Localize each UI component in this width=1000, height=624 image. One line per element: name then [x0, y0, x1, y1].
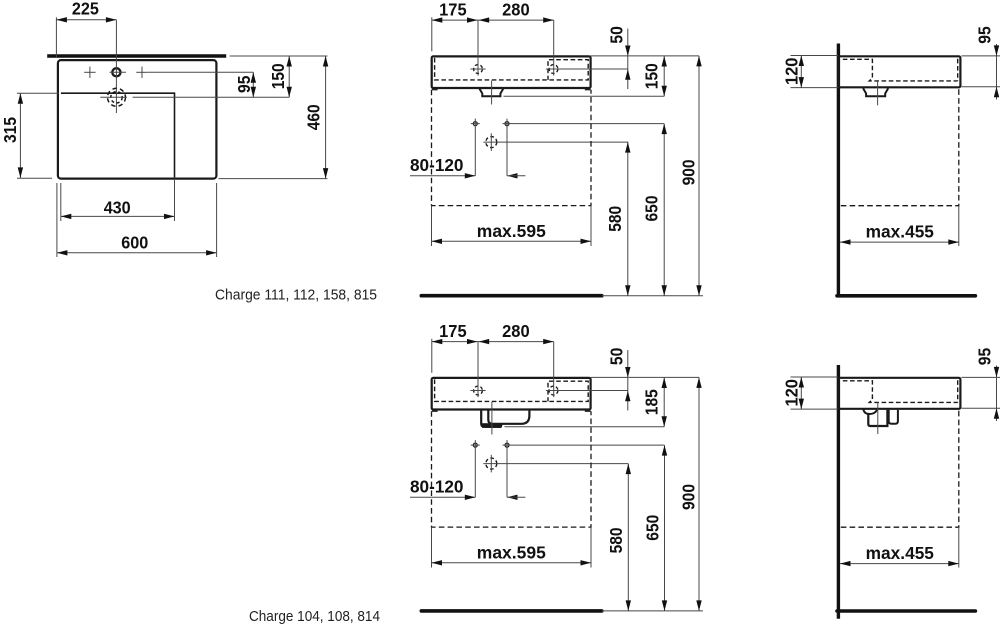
svg-text:175: 175: [439, 0, 467, 20]
svg-text:185: 185: [641, 389, 661, 415]
svg-text:120: 120: [781, 379, 801, 407]
svg-text:150: 150: [641, 63, 661, 89]
svg-text:225: 225: [72, 0, 99, 19]
svg-text:Charge 111, 112, 158, 815: Charge 111, 112, 158, 815: [215, 287, 377, 304]
svg-text:430: 430: [104, 197, 131, 217]
svg-text:80-120: 80-120: [410, 476, 464, 496]
svg-text:460: 460: [304, 104, 324, 130]
svg-text:600: 600: [121, 232, 148, 252]
svg-text:max.595: max.595: [477, 221, 546, 241]
svg-text:175: 175: [439, 321, 467, 341]
svg-text:95: 95: [975, 348, 995, 366]
svg-text:150: 150: [268, 63, 288, 89]
svg-text:max.455: max.455: [866, 222, 935, 242]
svg-text:95: 95: [975, 26, 995, 44]
svg-text:120: 120: [781, 57, 801, 85]
svg-text:580: 580: [605, 206, 625, 232]
svg-text:900: 900: [678, 159, 698, 185]
svg-text:900: 900: [679, 484, 699, 510]
svg-text:50: 50: [607, 347, 627, 365]
svg-text:580: 580: [606, 527, 626, 553]
svg-text:315: 315: [0, 117, 20, 143]
svg-text:280: 280: [502, 0, 530, 20]
svg-text:80-120: 80-120: [410, 155, 464, 175]
svg-text:max.455: max.455: [866, 543, 935, 563]
svg-text:50: 50: [607, 26, 627, 44]
svg-text:280: 280: [502, 321, 530, 341]
svg-text:Charge 104, 108, 814: Charge 104, 108, 814: [249, 608, 380, 624]
svg-text:95: 95: [234, 75, 254, 93]
svg-text:650: 650: [642, 514, 662, 540]
svg-text:max.595: max.595: [477, 543, 546, 563]
svg-text:650: 650: [642, 195, 662, 221]
